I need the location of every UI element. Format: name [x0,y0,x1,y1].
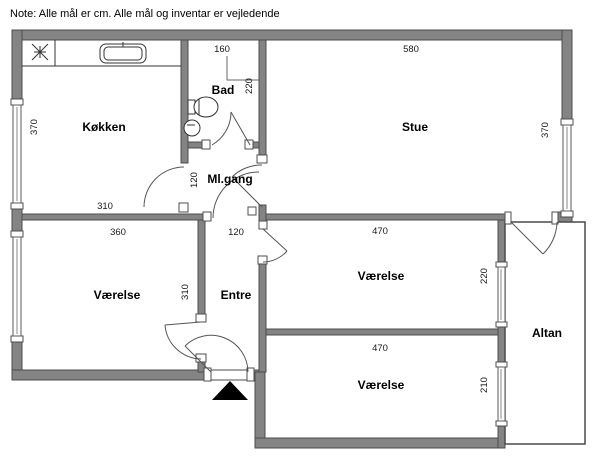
wall-segment [562,30,572,125]
window-cap [11,336,23,342]
wall-segment [22,214,207,220]
bath-dim-leader [227,56,259,80]
kitchen-door-arc [144,167,184,207]
dim-kitchen-width: 310 [97,201,113,212]
wall-segment [255,438,505,448]
dim-bedroom-top-width: 470 [372,226,388,237]
wall-segment [12,30,572,40]
room-label-hallway: Ml.gang [207,172,252,186]
window-cap [11,231,23,237]
entrance-threshold [211,370,247,380]
door-post [248,207,256,215]
door-post [259,221,267,229]
room-label-entry: Entre [221,288,252,302]
wall-segment [12,370,208,380]
dim-bedroom-top-height: 220 [479,268,490,284]
basin-icon [184,120,200,136]
door-post [203,212,211,221]
bath-door-arc [212,112,231,145]
window-cap [496,262,507,267]
window-cap [496,362,507,367]
dim-bath-width: 160 [214,44,230,55]
wall-segment [12,30,22,105]
door-post [505,212,511,224]
window-cap [496,421,507,426]
dim-bedroom-bottom-width: 470 [372,343,388,354]
note-text: Note: Alle mål er cm. Alle mål og invent… [10,8,280,20]
wall-segment [498,323,505,367]
wall-segment [498,220,505,267]
toilet-icon [188,97,218,117]
door-post [202,140,210,149]
dim-living-width: 580 [403,44,419,55]
door-post [245,140,253,149]
room-labels: Køkken Bad Stue Ml.gang Værelse Entre Væ… [82,83,562,392]
dim-bedroom-bottom-height: 210 [479,377,490,393]
entrance-door-arc [185,335,248,372]
window-cap [11,99,23,105]
room-label-balcony: Altan [532,326,562,340]
stove-icon [32,44,48,60]
bath-door-leaf [231,112,250,145]
wall-segment [259,40,266,162]
door-post [257,155,267,163]
door-post [204,368,211,381]
door-post [258,256,267,264]
window-cap [11,203,23,209]
wall-segment [198,220,205,317]
dim-living-height: 370 [540,122,551,138]
door-post [196,314,206,322]
window-cap [561,211,573,217]
dim-bedroom-left-width: 360 [110,227,126,238]
room-label-bath: Bad [212,83,235,97]
room-label-living: Stue [402,120,428,134]
room-label-bedroom-top: Værelse [358,269,405,283]
dim-entry-width: 120 [228,227,244,238]
wall-segment [266,214,505,220]
window-cap [561,119,573,125]
room-label-bedroom-bottom: Værelse [358,378,405,392]
wall-segment [181,40,188,163]
bedroom-left-door-leaf [165,322,201,325]
entrance-arrow-icon [212,381,248,400]
dim-bedroom-left-height: 310 [180,284,191,300]
window-cap [496,322,507,327]
room-label-kitchen: Køkken [82,120,125,134]
wall-segment [259,262,266,372]
dim-bath-height: 220 [244,78,255,94]
wall-segment [266,329,505,335]
kitchen-sink-icon [100,42,146,63]
bedroom-top-door-leaf [263,229,287,251]
floorplan-drawing: Note: Alle mål er cm. Alle mål og invent… [0,0,600,456]
dim-hallway-height: 120 [189,172,200,188]
dim-kitchen-height: 370 [29,119,40,135]
room-label-bedroom-left: Værelse [94,288,141,302]
floorplan-canvas: Note: Alle mål er cm. Alle mål og invent… [0,0,600,456]
wall-segment [255,372,265,448]
door-post [179,203,188,212]
